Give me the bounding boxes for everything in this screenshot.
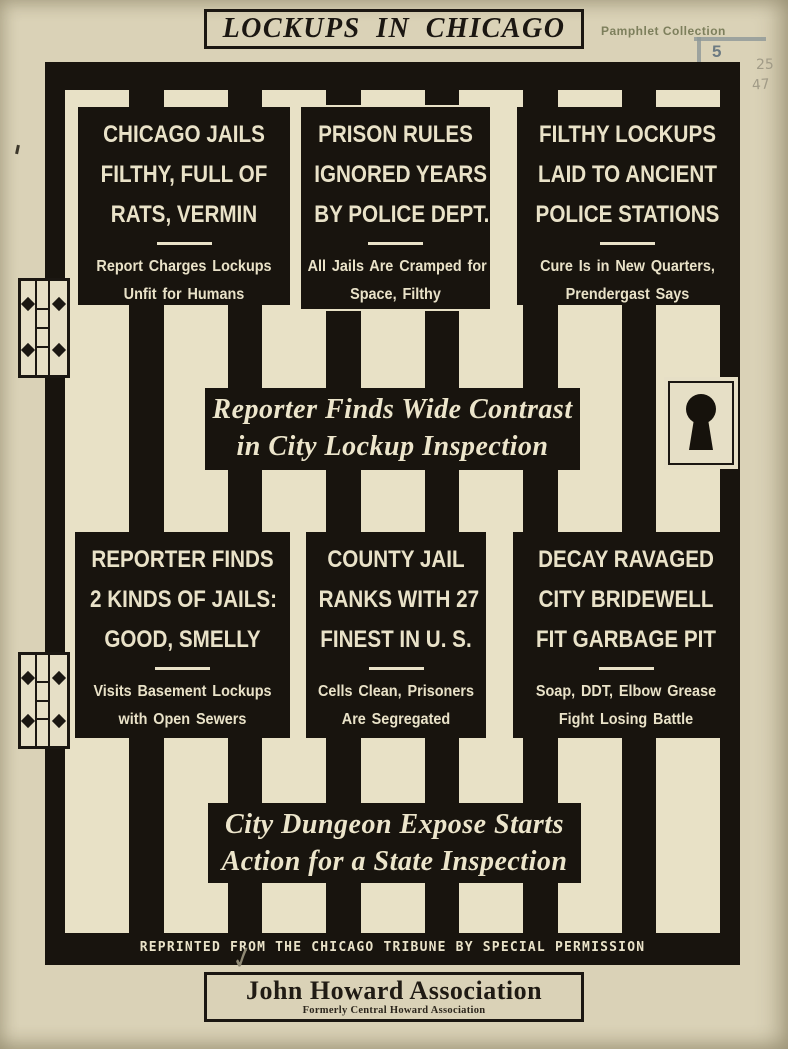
subheadline-line: Unfit for Humans [85,281,282,309]
divider-rule [155,667,210,670]
bracket-horizontal-line [694,37,766,41]
keyhole-plate-border [668,381,734,465]
headline-line: GOOD, SMELLY [90,620,275,660]
subheadline-line: Cure Is in New Quarters, [525,253,731,281]
subheadline-line: Space, Filthy [308,281,484,309]
subheadline-line: Are Segregated [312,706,479,734]
headline-line: CITY BRIDEWELL [529,580,723,620]
subheadline-line: Fight Losing Battle [521,706,731,734]
publisher-subtitle: Formerly Central Howard Association [207,1005,581,1017]
subheadline-line: Prendergast Says [525,281,731,309]
hinge-knuckle-line [35,681,50,683]
pencil-note: 25 [756,57,774,73]
subheadline-line: Cells Clean, Prisoners [312,678,479,706]
headline-line: CHICAGO JAILS [93,115,275,155]
pencil-note: 47 [751,76,770,93]
hinge-knuckle-line [35,327,50,329]
subheadline-line: with Open Sewers [83,706,283,734]
screw-diamond-icon [21,671,35,685]
title-banner: LOCKUPS IN CHICAGO [204,9,584,49]
center-banner-city-dungeon: City Dungeon Expose Starts Action for a … [208,803,581,883]
divider-rule [369,667,424,670]
reprint-notice: REPRINTED FROM THE CHICAGO TRIBUNE BY SP… [45,933,740,965]
screw-diamond-icon [52,297,66,311]
hinge-icon [18,652,70,749]
screw-diamond-icon [52,343,66,357]
jail-door-graphic: CHICAGO JAILS FILTHY, FULL OF RATS, VERM… [45,62,740,965]
screw-diamond-icon [52,714,66,728]
headline-line: FIT GARBAGE PIT [529,620,723,660]
hinge-knuckle-line [35,346,50,348]
pamphlet-cover: LOCKUPS IN CHICAGO Pamphlet Collection 5… [0,0,788,1049]
hinge-knuckle-line [35,700,50,702]
hinge-knuckle-line [35,308,50,310]
screw-diamond-icon [21,714,35,728]
hinge-knuckle-line [35,718,50,720]
subheadline-line: Soap, DDT, Elbow Grease [521,678,731,706]
divider-rule [368,242,423,245]
banner-line: Action for a State Inspection [208,843,581,880]
banner-line: in City Lockup Inspection [205,428,580,465]
subheadline-line: All Jails Are Cramped for [308,253,484,281]
headline-box-reporter-finds: REPORTER FINDS 2 KINDS OF JAILS: GOOD, S… [75,532,290,738]
headline-line: COUNTY JAIL [319,540,474,580]
subheadline-line: Visits Basement Lockups [83,678,283,706]
publisher-box: John Howard Association Formerly Central… [204,972,584,1022]
screw-diamond-icon [21,297,35,311]
headline-line: LAID TO ANCIENT [532,155,722,195]
screw-diamond-icon [21,343,35,357]
stray-ink-mark [15,145,20,154]
publisher-name: John Howard Association [207,976,581,1005]
headline-line: FILTHY LOCKUPS [532,115,722,155]
banner-line: Reporter Finds Wide Contrast [205,391,580,428]
headline-line: 2 KINDS OF JAILS: [90,580,275,620]
headline-box-county-jail: COUNTY JAIL RANKS WITH 27 FINEST IN U. S… [306,532,486,738]
keyhole-icon [680,392,722,454]
shelf-number: 5 [712,42,721,62]
headline-line: FINEST IN U. S. [319,620,474,660]
headline-box-prison-rules: PRISON RULES IGNORED YEARS BY POLICE DEP… [299,105,492,311]
headline-line: RATS, VERMIN [93,195,275,235]
keyhole-plate [664,377,738,469]
headline-line: POLICE STATIONS [532,195,722,235]
headline-line: BY POLICE DEPT. [314,195,477,235]
headline-line: PRISON RULES [314,115,477,155]
headline-box-chicago-jails: CHICAGO JAILS FILTHY, FULL OF RATS, VERM… [78,107,290,305]
banner-line: City Dungeon Expose Starts [208,806,581,843]
subheadline-line: Report Charges Lockups [85,253,282,281]
headline-box-decay-ravaged: DECAY RAVAGED CITY BRIDEWELL FIT GARBAGE… [513,532,739,738]
center-banner-reporter-contrast: Reporter Finds Wide Contrast in City Loc… [205,388,580,470]
headline-line: FILTHY, FULL OF [93,155,275,195]
screw-diamond-icon [52,671,66,685]
bracket-vertical-line [697,37,701,65]
headline-box-filthy-lockups: FILTHY LOCKUPS LAID TO ANCIENT POLICE ST… [517,107,738,305]
divider-rule [157,242,212,245]
headline-line: DECAY RAVAGED [529,540,723,580]
headline-line: RANKS WITH 27 [319,580,474,620]
page-title: LOCKUPS IN CHICAGO [223,13,566,45]
headline-line: REPORTER FINDS [90,540,275,580]
divider-rule [599,667,654,670]
headline-line: IGNORED YEARS [314,155,477,195]
divider-rule [600,242,655,245]
hinge-icon [18,278,70,378]
